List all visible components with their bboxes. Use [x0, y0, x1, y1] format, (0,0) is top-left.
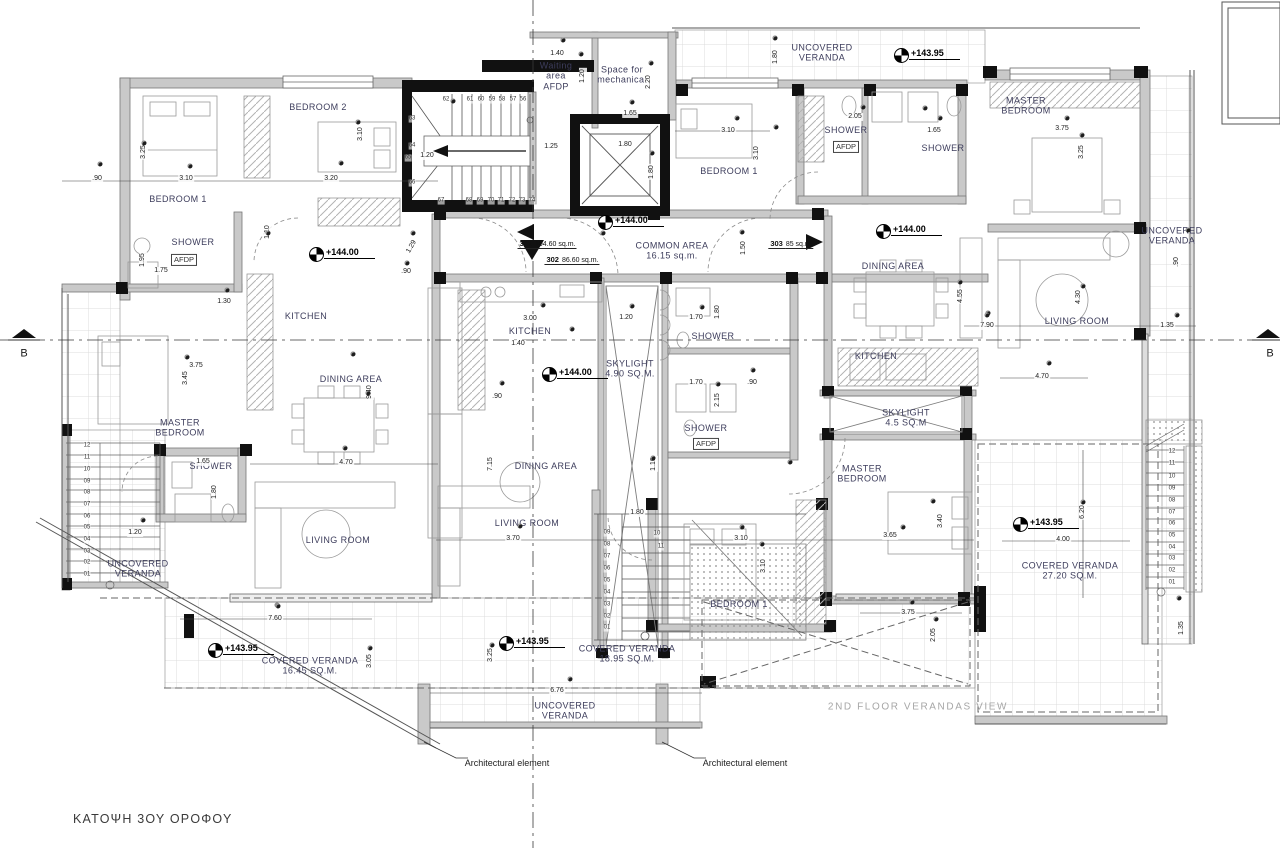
dimension-label: 3.70: [505, 535, 521, 543]
drawing-title: ΚΑΤΟΨΗ 3ΟΥ ΟΡΟΦΟΥ: [73, 812, 233, 826]
stair-number: 05: [604, 578, 611, 585]
dimension-label: 1.65: [195, 458, 211, 466]
unit-number: 302: [544, 255, 561, 265]
dimension-label: 3.00: [522, 315, 538, 323]
dimension-label: 3.10: [178, 175, 194, 183]
stair-number: 10: [1169, 474, 1176, 481]
survey-dot: [570, 327, 575, 332]
room-label: SKYLIGHT 4.5 SQ.M: [882, 408, 930, 429]
level-marker: +144.00: [309, 247, 375, 262]
level-marker: +144.00: [542, 367, 608, 382]
dimension-label: .90: [91, 175, 103, 183]
stair-number: 65: [405, 155, 412, 162]
stair-number: 63: [409, 116, 416, 123]
survey-dot: [541, 303, 546, 308]
room-label: MASTER BEDROOM: [1001, 96, 1050, 117]
survey-dot: [1175, 313, 1180, 318]
level-value: +143.95: [909, 48, 960, 60]
level-symbol-icon: [876, 224, 891, 239]
survey-dot: [1081, 284, 1086, 289]
dimension-label: 3.10: [720, 127, 736, 135]
dimension-label: 2.20: [645, 74, 653, 90]
dimension-label: 3.05: [366, 653, 374, 669]
survey-dot: [1065, 116, 1070, 121]
stair-number: 61: [467, 97, 474, 104]
stair-number: 68: [466, 198, 473, 205]
unit-area: 85 sq.m.: [785, 241, 814, 249]
survey-dot: [1080, 133, 1085, 138]
dimension-label: 1.50: [740, 240, 748, 256]
room-label: LIVING ROOM: [1045, 316, 1109, 326]
dimension-label: 4.55: [957, 288, 965, 304]
survey-dot: [343, 446, 348, 451]
stair-number: 57: [510, 97, 517, 104]
stair-number: 59: [489, 97, 496, 104]
room-label: DINING AREA: [515, 461, 577, 471]
dimension-label: 1.40: [510, 340, 526, 348]
room-label: SKYLIGHT 4.90 SQ.M.: [605, 359, 655, 380]
room-label: BEDROOM 1: [710, 599, 768, 609]
survey-dot: [651, 456, 656, 461]
dimension-label: 3.75: [188, 362, 204, 370]
dimension-label: .90: [400, 268, 412, 276]
survey-dot: [985, 313, 990, 318]
survey-dot: [910, 600, 915, 605]
level-symbol-icon: [499, 636, 514, 651]
stair-number: 66: [409, 180, 416, 187]
stair-number: 69: [477, 198, 484, 205]
room-label: COVERED VERANDA 18.95 SQ.M.: [579, 644, 676, 665]
stair-number: 03: [604, 602, 611, 609]
unit-area: 86.60 sq.m.: [561, 257, 600, 265]
level-marker: +143.95: [1013, 517, 1079, 532]
survey-dot: [266, 231, 271, 236]
survey-dot: [366, 391, 371, 396]
dimension-label: .90: [746, 379, 758, 387]
architectural-element-note-left: Architectural element: [465, 758, 550, 768]
room-label: KITCHEN: [509, 326, 551, 336]
afdp-tag: AFDP: [693, 438, 719, 450]
label-layer: ΚΑΤΟΨΗ 3ΟΥ ΟΡΟΦΟΥ 2ND FLOOR VERANDAS VIE…: [0, 0, 1280, 848]
level-symbol-icon: [208, 643, 223, 658]
stair-number: 09: [84, 479, 91, 486]
survey-dot: [518, 524, 523, 529]
unit-number: 303: [768, 239, 785, 249]
dimension-label: 1.95: [139, 252, 147, 268]
stair-number: 07: [604, 554, 611, 561]
survey-dot: [405, 261, 410, 266]
stair-number: 62: [443, 97, 450, 104]
stair-number: 09: [604, 530, 611, 537]
level-value: +143.95: [223, 643, 274, 655]
dimension-label: 1.29: [405, 238, 420, 256]
level-marker: +143.95: [894, 48, 960, 63]
survey-dot: [716, 382, 721, 387]
dimension-label: 4.00: [1055, 536, 1071, 544]
level-symbol-icon: [598, 215, 613, 230]
survey-dot: [630, 100, 635, 105]
survey-dot: [500, 381, 505, 386]
unit-tag-303: 30385 sq.m.: [768, 233, 813, 251]
survey-dot: [735, 116, 740, 121]
stair-number: 01: [604, 625, 611, 632]
dimension-label: 3.10: [733, 535, 749, 543]
dimension-label: 3.25: [140, 144, 148, 160]
room-label: UNCOVERED VERANDA: [107, 559, 168, 580]
dimension-label: 6.76: [549, 687, 565, 695]
stair-number: 03: [84, 549, 91, 556]
dimension-label: 1.35: [1159, 322, 1175, 330]
stair-number: 67: [438, 198, 445, 205]
dimension-label: 4.70: [338, 459, 354, 467]
dimension-label: 3.25: [1078, 144, 1086, 160]
stair-number: 11: [1169, 461, 1175, 468]
stair-number: 02: [1169, 568, 1176, 575]
stair-number: 07: [1169, 510, 1176, 517]
stair-number: 06: [604, 566, 611, 573]
dimension-label: 1.65: [622, 110, 638, 118]
stair-number: 11: [84, 455, 90, 462]
level-marker: +144.00: [598, 215, 664, 230]
survey-dot: [276, 604, 281, 609]
dimension-label: .90: [1173, 256, 1181, 268]
survey-dot: [188, 164, 193, 169]
section-letter-right: B: [1266, 348, 1273, 361]
dimension-label: 1.80: [629, 509, 645, 517]
dimension-label: 3.75: [1054, 125, 1070, 133]
room-label: Space for mechanical: [597, 65, 647, 86]
room-label: KITCHEN: [285, 311, 327, 321]
survey-dot: [901, 525, 906, 530]
verandas-view-watermark: 2ND FLOOR VERANDAS VIEW: [828, 701, 1008, 713]
stair-number: 01: [1169, 580, 1176, 587]
dimension-label: 3.45: [182, 370, 190, 386]
stair-number: 56: [520, 97, 527, 104]
dimension-label: 1.35: [1178, 620, 1186, 636]
level-value: +143.95: [1028, 517, 1079, 529]
dimension-label: 1.25: [543, 143, 559, 151]
dimension-label: 1.80: [714, 304, 722, 320]
survey-dot: [650, 151, 655, 156]
survey-dot: [356, 120, 361, 125]
room-label: UNCOVERED VERANDA: [534, 701, 595, 722]
stair-number: 64: [409, 143, 416, 150]
dimension-label: 1.70: [688, 379, 704, 387]
survey-dot: [1177, 596, 1182, 601]
dimension-label: 2.05: [847, 113, 863, 121]
stair-number: 05: [84, 525, 91, 532]
level-value: +144.00: [613, 215, 664, 227]
stair-number: 07: [84, 502, 91, 509]
stair-number: 12: [1169, 449, 1176, 456]
dimension-label: 6.20: [1079, 504, 1087, 520]
level-symbol-icon: [542, 367, 557, 382]
survey-dot: [649, 61, 654, 66]
stair-number: 58: [499, 97, 506, 104]
room-label: BEDROOM 2: [289, 102, 347, 112]
afdp-tag: AFDP: [171, 254, 197, 266]
level-marker: +143.95: [208, 643, 274, 658]
stair-number: 10: [84, 467, 91, 474]
floor-plan-canvas: ΚΑΤΟΨΗ 3ΟΥ ΟΡΟΦΟΥ 2ND FLOOR VERANDAS VIE…: [0, 0, 1280, 848]
dimension-label: 3.75: [900, 609, 916, 617]
afdp-tag: AFDP: [833, 141, 859, 153]
dimension-label: .90: [491, 393, 503, 401]
room-label: UNCOVERED VERANDA: [1141, 226, 1202, 247]
dimension-label: 3.65: [882, 532, 898, 540]
survey-dot: [1047, 361, 1052, 366]
room-label: SHOWER: [172, 237, 215, 247]
unit-number: 301: [518, 239, 535, 249]
unit-tag-302: 30286.60 sq.m.: [544, 249, 599, 267]
room-label: KITCHEN: [855, 351, 897, 361]
room-label: COVERED VERANDA 16.45 SQ.M.: [262, 656, 359, 677]
dimension-label: 1.75: [153, 267, 169, 275]
survey-dot: [934, 617, 939, 622]
dimension-label: 1.20: [419, 152, 435, 160]
survey-dot: [225, 288, 230, 293]
dimension-label: 1.80: [617, 141, 633, 149]
room-label: MASTER BEDROOM: [837, 464, 886, 485]
level-symbol-icon: [894, 48, 909, 63]
survey-dot: [773, 36, 778, 41]
stair-number: 08: [604, 542, 611, 549]
stair-number: 71: [498, 198, 505, 205]
room-label: SHOWER: [692, 331, 735, 341]
stair-number: 04: [604, 590, 611, 597]
survey-dot: [751, 368, 756, 373]
dimension-label: 1.65: [926, 127, 942, 135]
dimension-label: 3.10: [357, 126, 365, 142]
survey-dot: [788, 460, 793, 465]
stair-number: 10: [654, 531, 661, 538]
survey-dot: [185, 355, 190, 360]
level-marker: +143.95: [499, 636, 565, 651]
room-label: SHOWER: [825, 125, 868, 135]
survey-dot: [601, 231, 606, 236]
dimension-label: 3.25: [487, 647, 495, 663]
architectural-element-note-right: Architectural element: [703, 758, 788, 768]
room-label: DINING AREA: [862, 261, 924, 271]
dimension-label: 1.30: [216, 298, 232, 306]
survey-dot: [700, 305, 705, 310]
survey-dot: [740, 230, 745, 235]
stair-number: 04: [1169, 545, 1176, 552]
stair-number: 06: [84, 514, 91, 521]
stair-number: 08: [1169, 498, 1176, 505]
room-label: SHOWER: [922, 143, 965, 153]
survey-dot: [861, 105, 866, 110]
section-letter-left: B: [20, 348, 27, 361]
survey-dot: [368, 646, 373, 651]
dimension-label: 1.80: [211, 484, 219, 500]
level-value: +143.95: [514, 636, 565, 648]
stair-number: 11: [658, 544, 664, 551]
room-label: LIVING ROOM: [306, 535, 370, 545]
stair-number: 05: [1169, 533, 1176, 540]
dimension-label: 1.70: [688, 314, 704, 322]
unit-area: 104.60 sq.m.: [534, 241, 576, 249]
room-label: UNCOVERED VERANDA: [791, 43, 852, 64]
stair-number: 04: [84, 537, 91, 544]
survey-dot: [923, 106, 928, 111]
room-label: COMMON AREA 16.15 sq.m.: [636, 241, 709, 262]
stair-number: 09: [1169, 486, 1176, 493]
survey-dot: [740, 525, 745, 530]
survey-dot: [142, 141, 147, 146]
survey-dot: [1081, 500, 1086, 505]
dimension-label: 1.20: [127, 529, 143, 537]
survey-dot: [490, 643, 495, 648]
dimension-label: 4.30: [1075, 289, 1083, 305]
stair-number: 12: [84, 443, 91, 450]
level-symbol-icon: [1013, 517, 1028, 532]
dimension-label: 1.40: [549, 50, 565, 58]
dimension-label: 1.20: [618, 314, 634, 322]
dimension-label: 3.40: [937, 513, 945, 529]
stair-number: 74: [529, 198, 536, 205]
room-label: BEDROOM 1: [149, 194, 207, 204]
survey-dot: [931, 499, 936, 504]
stair-number: 02: [84, 560, 91, 567]
survey-dot: [630, 304, 635, 309]
level-marker: +144.00: [876, 224, 942, 239]
survey-dot: [568, 677, 573, 682]
room-label: Waiting area AFDP: [540, 60, 572, 91]
survey-dot: [451, 99, 456, 104]
stair-number: 70: [488, 198, 495, 205]
stair-number: 01: [84, 572, 91, 579]
dimension-label: 2.15: [714, 392, 722, 408]
dimension-label: 7.15: [487, 456, 495, 472]
stair-number: 60: [478, 97, 485, 104]
room-label: SHOWER: [190, 461, 233, 471]
survey-dot: [938, 116, 943, 121]
level-value: +144.00: [891, 224, 942, 236]
dimension-label: 4.70: [1034, 373, 1050, 381]
dimension-label: 1.80: [772, 49, 780, 65]
dimension-label: 1.80: [648, 164, 656, 180]
survey-dot: [351, 352, 356, 357]
room-label: COVERED VERANDA 27.20 SQ.M.: [1022, 561, 1119, 582]
stair-number: 03: [1169, 556, 1176, 563]
survey-dot: [561, 38, 566, 43]
stair-number: 02: [604, 614, 611, 621]
survey-dot: [958, 280, 963, 285]
stair-number: 06: [1169, 521, 1176, 528]
survey-dot: [141, 518, 146, 523]
stair-number: 72: [509, 198, 516, 205]
dimension-label: 7.90: [979, 322, 995, 330]
dimension-label: 3.10: [760, 558, 768, 574]
stair-number: 73: [519, 198, 526, 205]
room-label: DINING AREA: [320, 374, 382, 384]
survey-dot: [339, 161, 344, 166]
survey-dot: [579, 52, 584, 57]
level-value: +144.00: [324, 247, 375, 259]
survey-dot: [98, 162, 103, 167]
room-label: LIVING ROOM: [495, 518, 559, 528]
level-value: +144.00: [557, 367, 608, 379]
dimension-label: 7.60: [267, 615, 283, 623]
level-symbol-icon: [309, 247, 324, 262]
dimension-label: 3.10: [753, 145, 761, 161]
room-label: MASTER BEDROOM: [155, 418, 204, 439]
room-label: BEDROOM 1: [700, 166, 758, 176]
survey-dot: [1186, 228, 1191, 233]
survey-dot: [774, 125, 779, 130]
stair-number: 08: [84, 490, 91, 497]
survey-dot: [411, 231, 416, 236]
dimension-label: 3.20: [323, 175, 339, 183]
dimension-label: 1.20: [579, 68, 587, 84]
survey-dot: [760, 542, 765, 547]
room-label: SHOWER: [685, 423, 728, 433]
dimension-label: 2.05: [930, 627, 938, 643]
